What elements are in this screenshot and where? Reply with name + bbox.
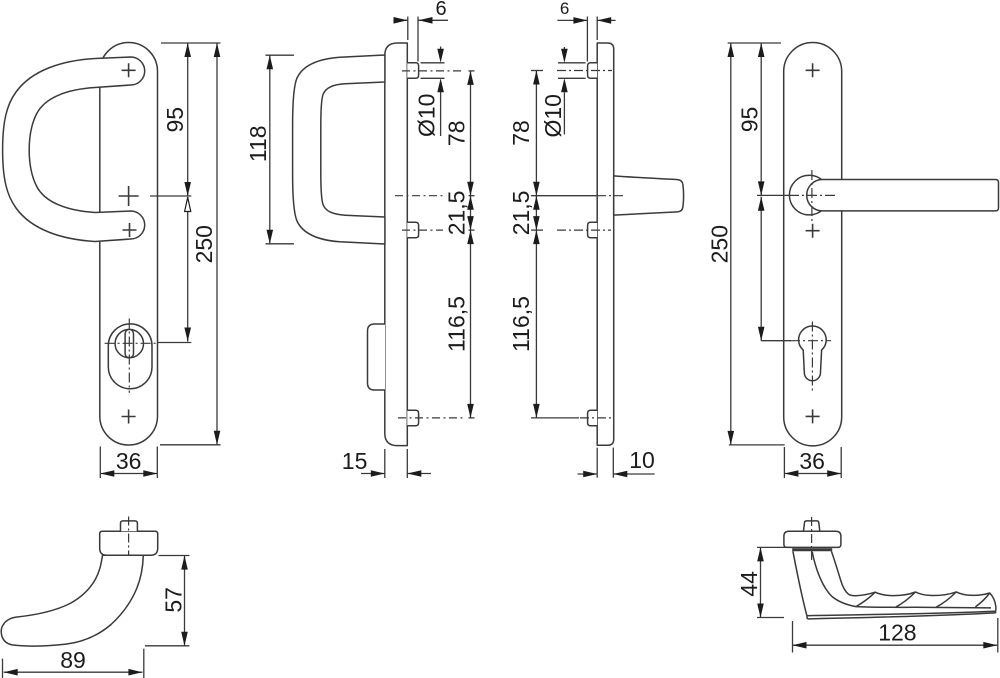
svg-text:6: 6 (560, 0, 569, 18)
svg-text:57: 57 (160, 587, 186, 613)
svg-text:118: 118 (245, 125, 271, 162)
svg-text:36: 36 (116, 448, 142, 474)
svg-text:Ø10: Ø10 (413, 94, 439, 137)
svg-text:89: 89 (60, 647, 86, 673)
svg-text:6: 6 (435, 0, 446, 20)
svg-text:36: 36 (799, 448, 825, 474)
svg-text:128: 128 (878, 620, 916, 646)
svg-text:78: 78 (508, 120, 534, 146)
svg-text:250: 250 (191, 225, 217, 263)
svg-text:95: 95 (162, 107, 188, 133)
svg-text:44: 44 (736, 571, 762, 597)
svg-text:Ø10: Ø10 (540, 94, 566, 137)
svg-text:15: 15 (342, 448, 368, 474)
svg-text:78: 78 (444, 121, 470, 147)
svg-text:21,5: 21,5 (444, 191, 470, 236)
svg-text:250: 250 (707, 225, 733, 263)
svg-text:116,5: 116,5 (444, 296, 470, 352)
svg-text:10: 10 (629, 447, 655, 473)
svg-text:116,5: 116,5 (508, 296, 534, 352)
svg-text:21,5: 21,5 (508, 191, 534, 236)
svg-text:95: 95 (736, 107, 762, 133)
